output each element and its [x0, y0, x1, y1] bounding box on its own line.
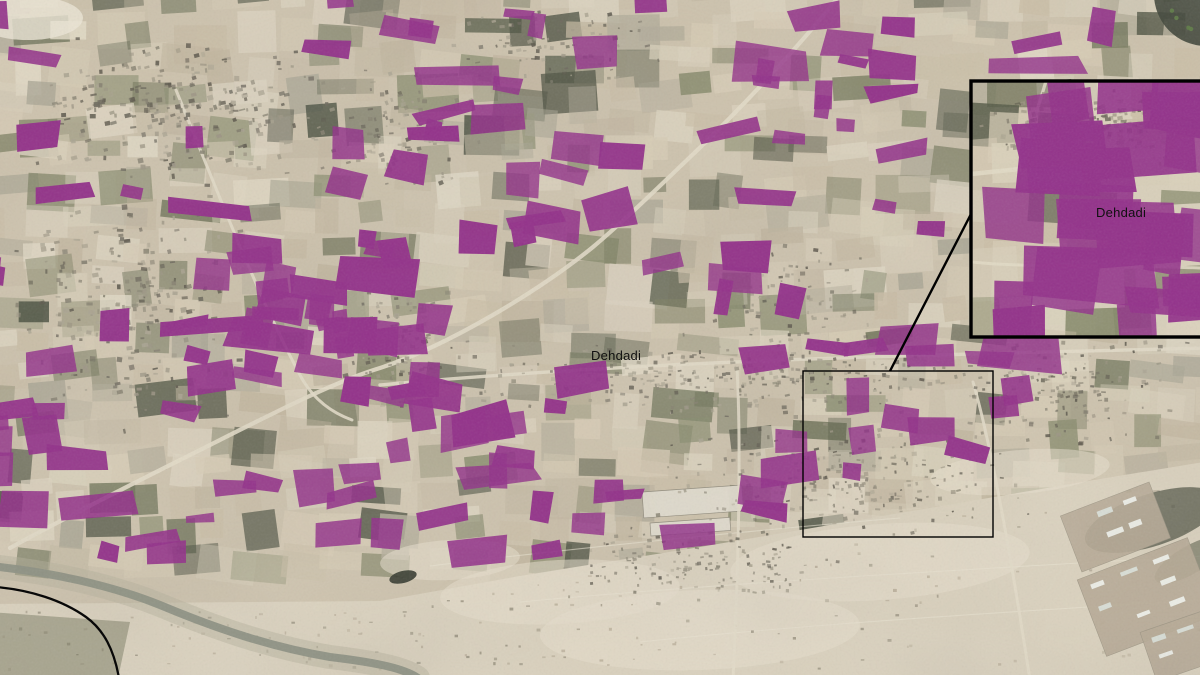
place-label-main: Dehdadi: [591, 348, 641, 363]
place-label-inset: Dehdadi: [1096, 205, 1146, 220]
satellite-map-figure: Dehdadi Dehdadi: [0, 0, 1200, 675]
inset-grain: [971, 81, 1200, 337]
map-canvas: Dehdadi Dehdadi: [0, 0, 1200, 675]
